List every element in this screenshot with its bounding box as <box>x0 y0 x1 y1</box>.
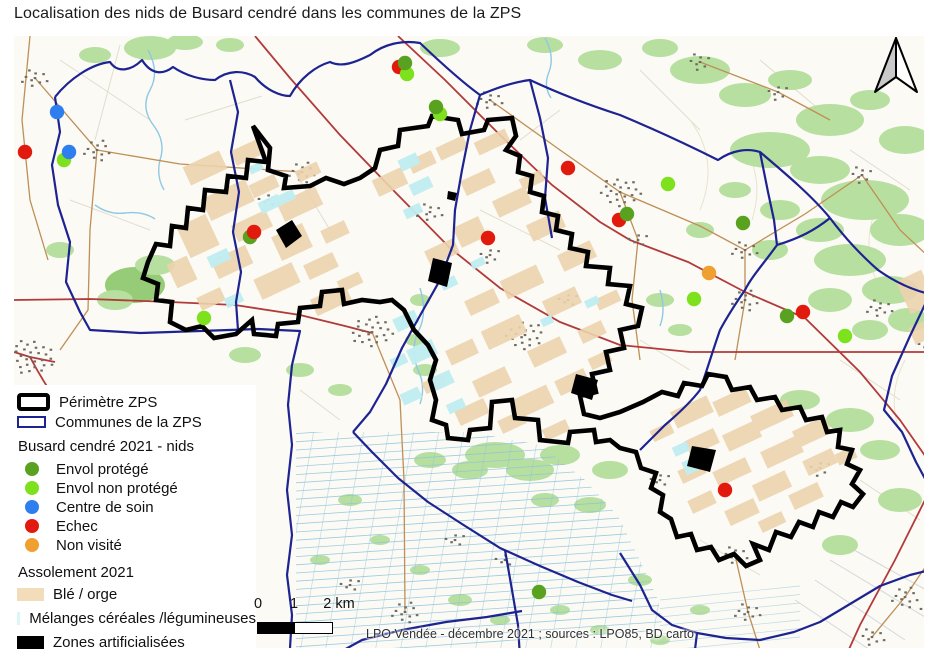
legend-ble-orge: Blé / orge <box>17 585 256 603</box>
nest-marker-echec <box>18 145 32 159</box>
ble-orge-swatch <box>17 588 44 601</box>
legend-envol-protege-label: Envol protégé <box>56 461 149 478</box>
scale-bar-graphic <box>257 622 333 634</box>
legend-centre-de-soin: Centre de soin <box>17 498 256 516</box>
nest-marker-centre-de-soin <box>50 105 64 119</box>
envol-non-protege-dot-icon <box>25 481 39 495</box>
zones-artificialisees-swatch <box>17 636 44 649</box>
legend-melanges: Mélanges céréales /légumineuses <box>17 609 256 627</box>
map-legend: Périmètre ZPSCommunes de la ZPSBusard ce… <box>14 385 256 648</box>
legend-zones-artificialisees: Zones artificialisées <box>17 633 256 651</box>
nest-marker-echec <box>718 483 732 497</box>
melanges-swatch <box>17 612 20 625</box>
envol-protege-dot-icon <box>25 462 39 476</box>
nest-marker-envol-non-protege <box>838 329 852 343</box>
scale-tick-1: 1 <box>290 596 298 612</box>
legend-communes-zps-label: Communes de la ZPS <box>55 414 202 431</box>
centre-de-soin-dot-icon <box>25 500 39 514</box>
legend-communes-zps: Communes de la ZPS <box>17 413 256 431</box>
scale-tick-2km: 2 km <box>323 596 354 612</box>
communes-swatch <box>17 416 46 428</box>
legend-echec: Echec <box>17 517 256 535</box>
attribution: LPO Vendée - décembre 2021 ; sources : L… <box>366 627 694 641</box>
map-title: Localisation des nids de Busard cendré d… <box>14 5 521 23</box>
legend-zones-artificialisees-label: Zones artificialisées <box>53 634 185 651</box>
non-visite-dot-icon <box>25 538 39 552</box>
nest-marker-envol-protege <box>780 309 794 323</box>
nest-marker-non-visite <box>702 266 716 280</box>
legend-heading-assolement: Assolement 2021 <box>17 563 256 581</box>
nest-marker-envol-non-protege <box>661 177 675 191</box>
legend-non-visite-label: Non visité <box>56 537 122 554</box>
legend-envol-protege: Envol protégé <box>17 460 256 478</box>
scale-tick-0: 0 <box>254 596 262 612</box>
nest-marker-echec <box>796 305 810 319</box>
legend-perimetre-zps: Périmètre ZPS <box>17 393 256 411</box>
nest-marker-envol-protege <box>736 216 750 230</box>
legend-melanges-label: Mélanges céréales /légumineuses <box>29 610 256 627</box>
scale-bar-black-segment <box>258 623 295 633</box>
nest-marker-envol-protege <box>398 56 412 70</box>
scale-bar: 0 1 2 km <box>242 594 382 638</box>
legend-envol-non-protege-label: Envol non protégé <box>56 480 178 497</box>
legend-echec-label: Echec <box>56 518 98 535</box>
legend-perimetre-zps-label: Périmètre ZPS <box>59 394 157 411</box>
legend-centre-de-soin-label: Centre de soin <box>56 499 154 516</box>
legend-envol-non-protege: Envol non protégé <box>17 479 256 497</box>
nest-marker-echec <box>247 225 261 239</box>
page: { "title": "Localisation des nids de Bus… <box>0 0 934 658</box>
nest-marker-envol-protege <box>532 585 546 599</box>
nest-marker-envol-non-protege <box>197 311 211 325</box>
nest-marker-envol-non-protege <box>687 292 701 306</box>
nest-marker-echec <box>481 231 495 245</box>
nest-marker-centre-de-soin <box>62 145 76 159</box>
map-canvas: Périmètre ZPSCommunes de la ZPSBusard ce… <box>14 36 924 648</box>
nest-marker-envol-protege <box>429 100 443 114</box>
nest-marker-envol-protege <box>620 207 634 221</box>
legend-ble-orge-label: Blé / orge <box>53 586 117 603</box>
legend-non-visite: Non visité <box>17 536 256 554</box>
echec-dot-icon <box>25 519 39 533</box>
nest-marker-echec <box>561 161 575 175</box>
legend-heading-nids: Busard cendré 2021 - nids <box>17 437 256 455</box>
zps-perimeter-swatch <box>17 393 50 411</box>
